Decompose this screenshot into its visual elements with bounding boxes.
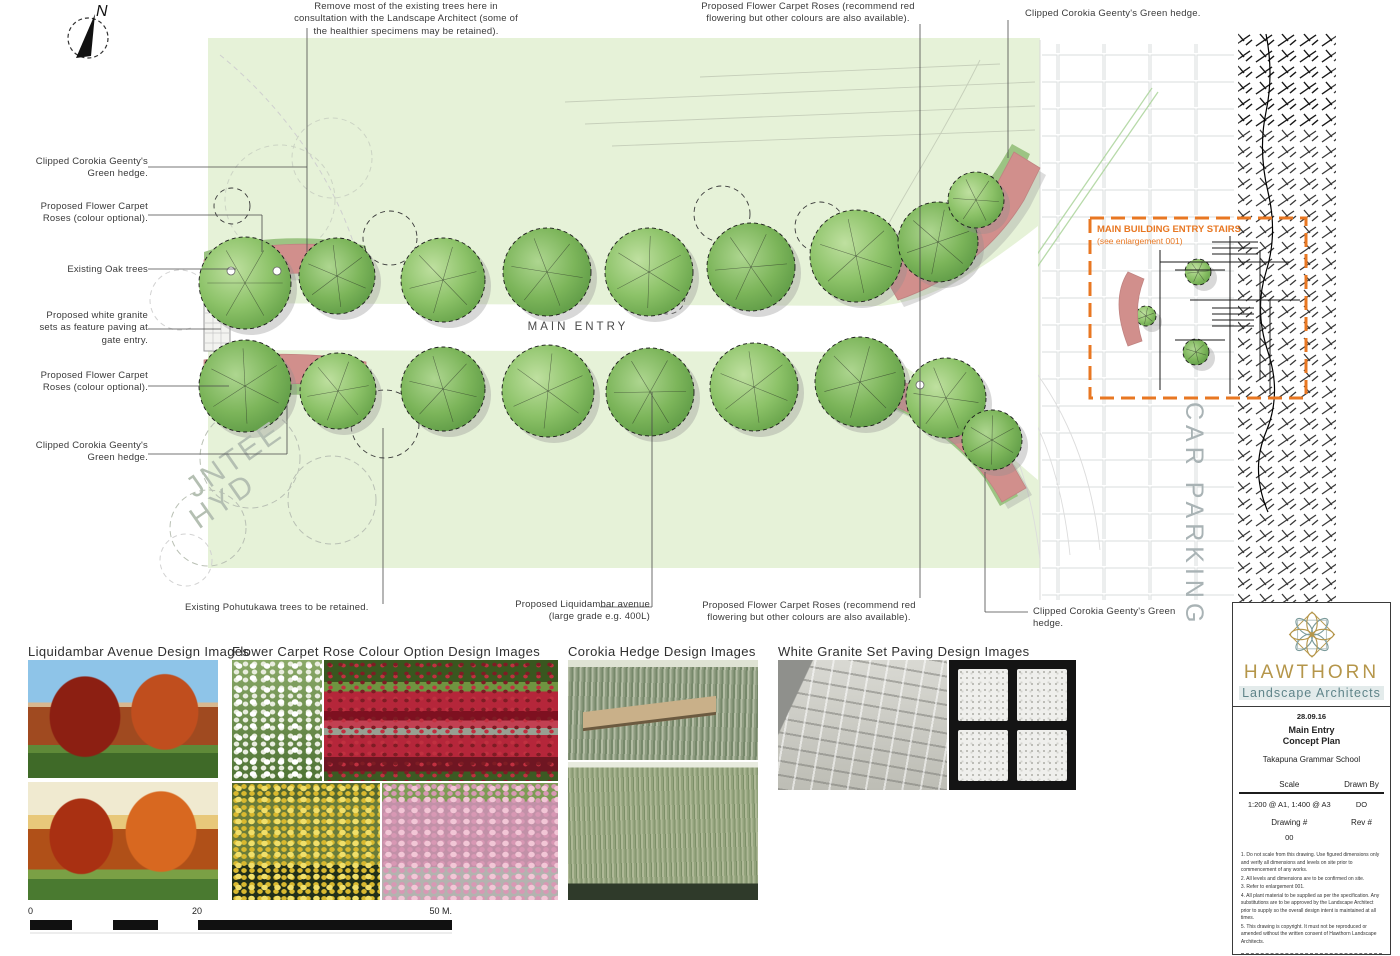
note-white-granite: Proposed white granite sets as feature p…: [28, 310, 148, 347]
photo-liquidambar-avenue-1: [28, 660, 218, 778]
rev-value: [1339, 827, 1383, 842]
north-arrow: N: [68, 3, 108, 58]
note-existing-oak: Existing Oak trees: [28, 264, 148, 276]
north-label: N: [96, 3, 108, 20]
scale-header: Scale: [1239, 780, 1339, 794]
firm-name: HAWTHORN: [1244, 662, 1379, 684]
client-name: Takapuna Grammar School: [1263, 755, 1360, 764]
granite-block: [1017, 669, 1067, 721]
hawthorn-logo-icon: [1280, 609, 1344, 660]
drawing-number-label: Drawing #: [1239, 809, 1339, 827]
hedge-sculpture: [583, 696, 716, 731]
photo-granite-paving: [778, 660, 947, 790]
granite-block: [958, 730, 1008, 782]
dense-survey-strip: [1238, 32, 1336, 604]
drawing-date: 28.09.16: [1297, 712, 1326, 721]
firm-subtitle: Landscape Architects: [1239, 686, 1384, 700]
drawn-by-value: DO: [1339, 794, 1383, 809]
granite-block: [1017, 730, 1067, 782]
scale-tick-20: 20: [192, 906, 202, 916]
note-remove-trees: Remove most of the existing trees here i…: [290, 1, 522, 38]
photo-rose-pink: [382, 783, 558, 900]
note-liquidambar: Proposed Liquidambar avenue (large grade…: [488, 599, 650, 624]
drawing-number-value: 00: [1239, 827, 1339, 842]
scale-tick-0: 0: [28, 906, 33, 916]
car-parking-label: CAR PARKING: [1180, 402, 1208, 627]
note-roses-left-top: Proposed Flower Carpet Roses (colour opt…: [28, 201, 148, 226]
note-liquidambar-line1: Proposed Liquidambar avenue: [515, 599, 650, 610]
photo-rose-red-garden: [324, 660, 558, 781]
photo-granite-setts: [949, 660, 1076, 790]
title-block-note: 4. All plant material to be supplied as …: [1241, 893, 1382, 923]
note-roses-bottom: Proposed Flower Carpet Roses (recommend …: [686, 600, 932, 625]
header-liquidambar-images: Liquidambar Avenue Design Images: [28, 644, 249, 659]
title-block-note: 5. This drawing is copyright. It must no…: [1241, 924, 1382, 947]
photo-rose-yellow: [232, 783, 380, 900]
note-liquidambar-line2: (large grade e.g. 400L): [549, 611, 650, 622]
title-block: HAWTHORN Landscape Architects 28.09.16 M…: [1232, 602, 1391, 955]
header-granite-images: White Granite Set Paving Design Images: [778, 644, 1029, 659]
note-roses-left-bottom: Proposed Flower Carpet Roses (colour opt…: [28, 370, 148, 395]
title-block-divider: [1233, 706, 1390, 707]
title-block-note: 1. Do not scale from this drawing. Use f…: [1241, 852, 1382, 875]
photo-liquidambar-avenue-2: [28, 782, 218, 900]
title-block-note: 3. Refer to enlargement 001.: [1241, 884, 1382, 892]
project-title-line2: Concept Plan: [1283, 736, 1341, 746]
header-corokia-images: Corokia Hedge Design Images: [568, 644, 756, 659]
enlargement-title: MAIN BUILDING ENTRY STAIRS: [1097, 224, 1241, 235]
note-corokia-left-bottom: Clipped Corokia Geenty's Green hedge.: [28, 440, 148, 465]
drawn-by-header: Drawn By: [1339, 780, 1383, 794]
title-block-notes: 1. Do not scale from this drawing. Use f…: [1241, 852, 1382, 954]
header-rose-images: Flower Carpet Rose Colour Option Design …: [232, 644, 540, 659]
enlargement-subtitle: (see enlargement 001): [1097, 236, 1183, 246]
granite-block: [958, 669, 1008, 721]
project-title-line1: Main Entry: [1288, 725, 1334, 735]
note-corokia-left-top: Clipped Corokia Geenty's Green hedge.: [28, 156, 148, 181]
landscape-concept-plan-sheet: { "plan": { "main_entry": "MAIN ENTRY", …: [0, 0, 1400, 956]
rev-label: Rev #: [1339, 809, 1383, 827]
photo-corokia-hedge-1: [568, 660, 758, 760]
note-roses-top: Proposed Flower Carpet Roses (recommend …: [686, 1, 930, 26]
title-block-table: Scale Drawn By 1:200 @ A1, 1:400 @ A3 DO…: [1239, 780, 1383, 842]
main-entry-label: MAIN ENTRY: [528, 321, 629, 333]
scale-value: 1:200 @ A1, 1:400 @ A3: [1239, 794, 1339, 809]
title-block-note: 2. All levels and dimensions are to be c…: [1241, 876, 1382, 884]
note-corokia-top-right: Clipped Corokia Geenty's Green hedge.: [1025, 8, 1235, 20]
scale-bar: 0 20 50 M.: [28, 906, 452, 933]
photo-corokia-hedge-2: [568, 762, 758, 900]
photo-rose-white: [232, 660, 322, 781]
scale-tick-50: 50 M.: [429, 906, 452, 916]
note-corokia-bottom-right: Clipped Corokia Geenty's Green hedge.: [1033, 606, 1208, 631]
